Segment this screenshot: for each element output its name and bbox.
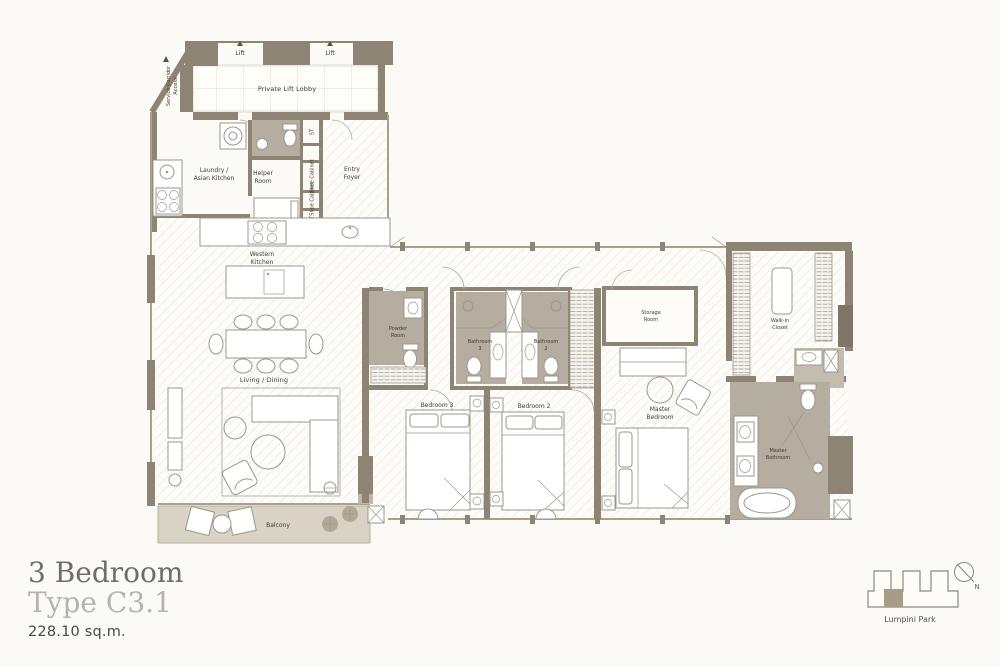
wardrobe — [815, 253, 832, 341]
bathroom3-num: 3 — [478, 346, 481, 352]
bed — [406, 410, 470, 510]
entry-foyer-label2: Foyer — [344, 174, 361, 181]
entry-foyer-label: Entry — [344, 166, 360, 173]
access-arrow-icon — [163, 56, 169, 62]
north-compass-icon: N — [955, 563, 980, 592]
master-bathroom-label: Master — [769, 448, 787, 454]
lift-shaft — [353, 42, 393, 65]
plan-area: 228.10 sq.m. — [28, 624, 126, 640]
kitchen-appliances — [153, 160, 182, 216]
bathroom3-label: Bathroom — [468, 339, 493, 345]
bedroom3-label: Bedroom 3 — [421, 402, 454, 409]
laundry-label2: Asian Kitchen — [194, 175, 235, 182]
floorplan-page: Lift Lift Private Lift Lobby Service Cor… — [0, 0, 1000, 667]
shoe-cabinet-label2: Shoe Cabinet — [310, 182, 316, 215]
western-kitchen-label2: Kitchen — [251, 259, 274, 266]
washer — [220, 123, 246, 149]
bathtub — [738, 488, 796, 518]
building-outline — [868, 571, 958, 607]
lift-shaft — [263, 42, 310, 65]
wardrobe — [733, 253, 750, 375]
plan-title: 3 Bedroom — [28, 556, 183, 589]
master-bedroom-label: Master — [650, 406, 671, 413]
western-kitchen-label: Western — [250, 251, 275, 258]
bathroom2-label: Bathroom — [534, 339, 559, 345]
lift-label: Lift — [235, 50, 245, 57]
lift-label: Lift — [325, 50, 335, 57]
north-label: N — [974, 583, 979, 591]
helper-room-label2: Room — [254, 178, 271, 185]
plan-subtitle: Type C3.1 — [28, 586, 172, 619]
shaft-x — [824, 350, 838, 372]
master-bathroom-label2: Bathroom — [766, 455, 791, 461]
shaft-x — [834, 500, 850, 519]
bed — [616, 428, 688, 508]
private-lift-lobby-label: Private Lift Lobby — [258, 85, 316, 93]
unit-location-marker — [884, 589, 903, 607]
living-dining-label: Living / Dining — [240, 376, 288, 384]
storage-room-label: Storage — [641, 310, 661, 316]
walkin-closet-label2: Closet — [772, 325, 788, 331]
powder-room-label2: Room — [391, 333, 405, 339]
service-corridor-label: Service Corridor — [166, 65, 172, 106]
master-bedroom-label2: Bedroom — [646, 414, 673, 421]
powder-room-label: Powder — [389, 326, 408, 332]
balcony-label: Balcony — [266, 522, 290, 529]
floor-plan: Lift Lift Private Lift Lobby Service Cor… — [0, 0, 1000, 667]
shoe-cabinet-strip: ST Shoe Cabinet Shoe Cabinet ST — [300, 120, 323, 232]
bed — [502, 412, 564, 510]
helper-bathroom — [252, 120, 300, 156]
helper-room-label: Helper — [253, 170, 273, 177]
bathroom2-num: 2 — [544, 346, 547, 352]
walkin-closet-label: Walk-in — [771, 318, 789, 324]
laundry-label: Laundry / — [200, 167, 229, 174]
key-plan: Lumpini Park N — [868, 563, 980, 625]
service-corridor-label2: Access — [173, 77, 179, 95]
shaft-x — [368, 506, 384, 523]
st-label: ST — [310, 128, 316, 135]
bedroom2-label: Bedroom 2 — [518, 403, 551, 410]
wardrobe — [570, 290, 596, 388]
title-block: 3 Bedroom Type C3.1 228.10 sq.m. — [28, 556, 183, 640]
storage-room-label2: Room — [644, 317, 658, 323]
keyplan-location-label: Lumpini Park — [884, 615, 936, 624]
service-corridor-access: Service Corridor Access — [163, 56, 179, 106]
vent-shaft — [506, 290, 522, 332]
